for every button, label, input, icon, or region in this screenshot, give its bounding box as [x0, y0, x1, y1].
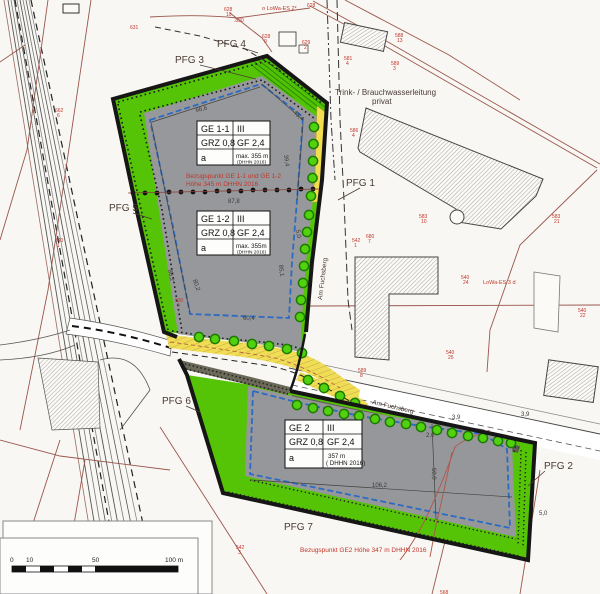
svg-text:1: 1 [57, 243, 60, 249]
svg-text:24: 24 [463, 280, 469, 286]
svg-text:4: 4 [346, 61, 349, 67]
svg-text:max. 355m: max. 355m [236, 243, 267, 250]
svg-text:a: a [289, 453, 294, 463]
svg-text:0: 0 [177, 303, 180, 309]
svg-text:4: 4 [352, 133, 355, 139]
svg-text:568: 568 [440, 590, 449, 594]
svg-text:631: 631 [130, 25, 139, 31]
svg-text:GE 1-1: GE 1-1 [201, 124, 230, 134]
svg-text:0: 0 [10, 557, 14, 564]
svg-text:3: 3 [393, 66, 396, 72]
svg-text:PFG 2: PFG 2 [544, 461, 573, 472]
svg-text:Höhe 345 m DHHN 2016: Höhe 345 m DHHN 2016 [186, 181, 259, 188]
svg-text:III: III [237, 124, 245, 134]
svg-text:9: 9 [264, 39, 267, 45]
svg-text:22: 22 [580, 313, 586, 319]
svg-text:a: a [201, 243, 206, 253]
svg-text:a: a [201, 153, 206, 163]
svg-text:10: 10 [226, 12, 232, 18]
svg-text:III: III [327, 423, 335, 433]
svg-text:GF 2,4: GF 2,4 [327, 437, 355, 447]
svg-text:3,9: 3,9 [521, 412, 530, 418]
svg-text:GF 2,4: GF 2,4 [237, 228, 265, 238]
svg-text:PFG 4: PFG 4 [217, 39, 246, 50]
svg-text:100 m: 100 m [165, 557, 183, 564]
svg-text:21: 21 [554, 219, 560, 225]
svg-text:(DHHN 2016): (DHHN 2016) [237, 250, 266, 256]
svg-text:50: 50 [92, 557, 100, 564]
svg-text:GF 2,4: GF 2,4 [237, 138, 265, 148]
svg-text:10: 10 [421, 219, 427, 225]
svg-text:GRZ 0,8: GRZ 0,8 [201, 138, 235, 148]
svg-text:6: 6 [57, 113, 60, 119]
svg-text:III: III [237, 214, 245, 224]
svg-text:357 m: 357 m [328, 453, 345, 460]
svg-text:(DHHN 2016): (DHHN 2016) [237, 160, 266, 166]
svg-text:.830: .830 [234, 18, 244, 24]
svg-text:PFG 1: PFG 1 [346, 178, 375, 189]
svg-text:LoWa-ES 3 d: LoWa-ES 3 d [483, 280, 516, 286]
svg-text:13: 13 [397, 38, 403, 44]
svg-text:privat: privat [372, 97, 392, 106]
svg-text:Trink- / Brauchwasserleitung: Trink- / Brauchwasserleitung [335, 88, 436, 97]
svg-text:10: 10 [26, 557, 34, 564]
svg-text:1: 1 [354, 243, 357, 249]
svg-text:3,9: 3,9 [452, 415, 461, 421]
svg-text:25: 25 [448, 355, 454, 361]
svg-text:60,4: 60,4 [243, 316, 255, 322]
svg-text:7: 7 [368, 239, 371, 245]
svg-text:PFG 5: PFG 5 [109, 203, 138, 214]
svg-text:GE 2: GE 2 [289, 423, 310, 433]
svg-text:3: 3 [238, 550, 241, 556]
svg-text:106,2: 106,2 [372, 483, 388, 489]
svg-text:5,0: 5,0 [539, 511, 548, 517]
svg-text:PFG 3: PFG 3 [175, 55, 204, 66]
svg-text:87,8: 87,8 [228, 199, 240, 205]
svg-text:8: 8 [360, 373, 363, 379]
svg-text:PFG 6: PFG 6 [162, 396, 191, 407]
svg-text:GRZ 0,8: GRZ 0,8 [289, 437, 323, 447]
svg-text:( DHHN 2016): ( DHHN 2016) [326, 460, 365, 467]
svg-text:GRZ 0,8: GRZ 0,8 [201, 228, 235, 238]
svg-text:Bezugspunkt GE 1-1 und GE 1-2: Bezugspunkt GE 1-1 und GE 1-2 [186, 173, 281, 180]
svg-text:Bezugspunkt GE2 Höhe 347 m DHH: Bezugspunkt GE2 Höhe 347 m DHHN 2016 [300, 547, 427, 554]
svg-text:o LoWa-ES 2*: o LoWa-ES 2* [262, 6, 298, 12]
svg-text:PFG 7: PFG 7 [284, 522, 313, 533]
svg-text:2: 2 [304, 45, 307, 51]
svg-text:GE 1-2: GE 1-2 [201, 214, 230, 224]
svg-text:50,0: 50,0 [430, 468, 436, 481]
svg-text:85,1: 85,1 [277, 265, 284, 278]
svg-text:2,0: 2,0 [426, 433, 435, 439]
svg-text:max. 355 m: max. 355 m [236, 153, 268, 160]
svg-text:628: 628 [307, 3, 316, 9]
